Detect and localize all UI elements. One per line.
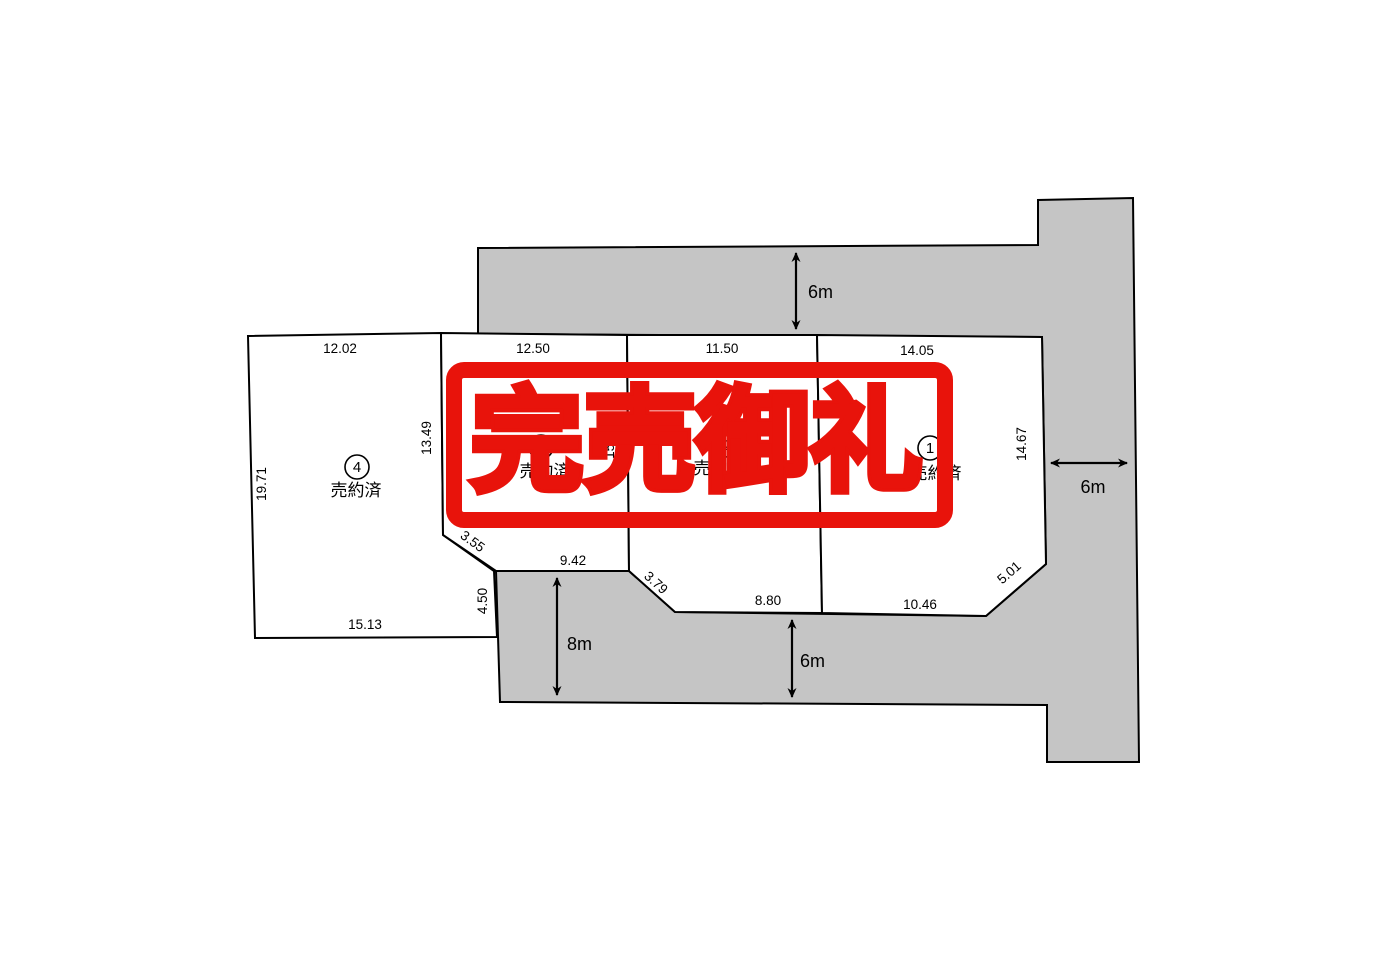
lot-1-east-dim: 14.67: [1014, 427, 1029, 461]
lot-4-bottom-dim: 15.13: [348, 617, 382, 632]
land-plot-map-page: 6m 6m 6m 8m 12.02 12.50 11.50 14.05 15.1…: [0, 0, 1387, 960]
lot-2-bottom-dim: 8.80: [755, 593, 781, 608]
lot-4-east-lower-dim: 4.50: [475, 588, 490, 614]
lot-4-status: 売約済: [331, 481, 382, 500]
bottom-road-width-label: 6m: [800, 651, 825, 671]
right-road-width-label: 6m: [1080, 477, 1105, 497]
sold-out-stamp: 完売御礼: [454, 370, 945, 520]
plot-map: 6m 6m 6m 8m 12.02 12.50 11.50 14.05 15.1…: [0, 0, 1387, 960]
lot-1-top-dim: 14.05: [900, 343, 934, 358]
top-road-width-label: 6m: [808, 282, 833, 302]
lot-3-bottom-dim: 9.42: [560, 553, 586, 568]
lot-4-west-dim: 19.71: [254, 467, 269, 501]
lot-4-number: 4: [353, 459, 361, 476]
lot-4-east-dim: 13.49: [419, 421, 434, 455]
lot-1-number: 1: [926, 440, 934, 457]
lot-1-bottom-dim: 10.46: [903, 597, 937, 612]
lot-3-top-dim: 12.50: [516, 341, 550, 356]
lot-4-top-dim: 12.02: [323, 341, 357, 356]
west-road-width-label: 8m: [567, 634, 592, 654]
sold-out-stamp-text: 完売御礼: [471, 380, 923, 505]
lot-2-top-dim: 11.50: [706, 341, 739, 356]
